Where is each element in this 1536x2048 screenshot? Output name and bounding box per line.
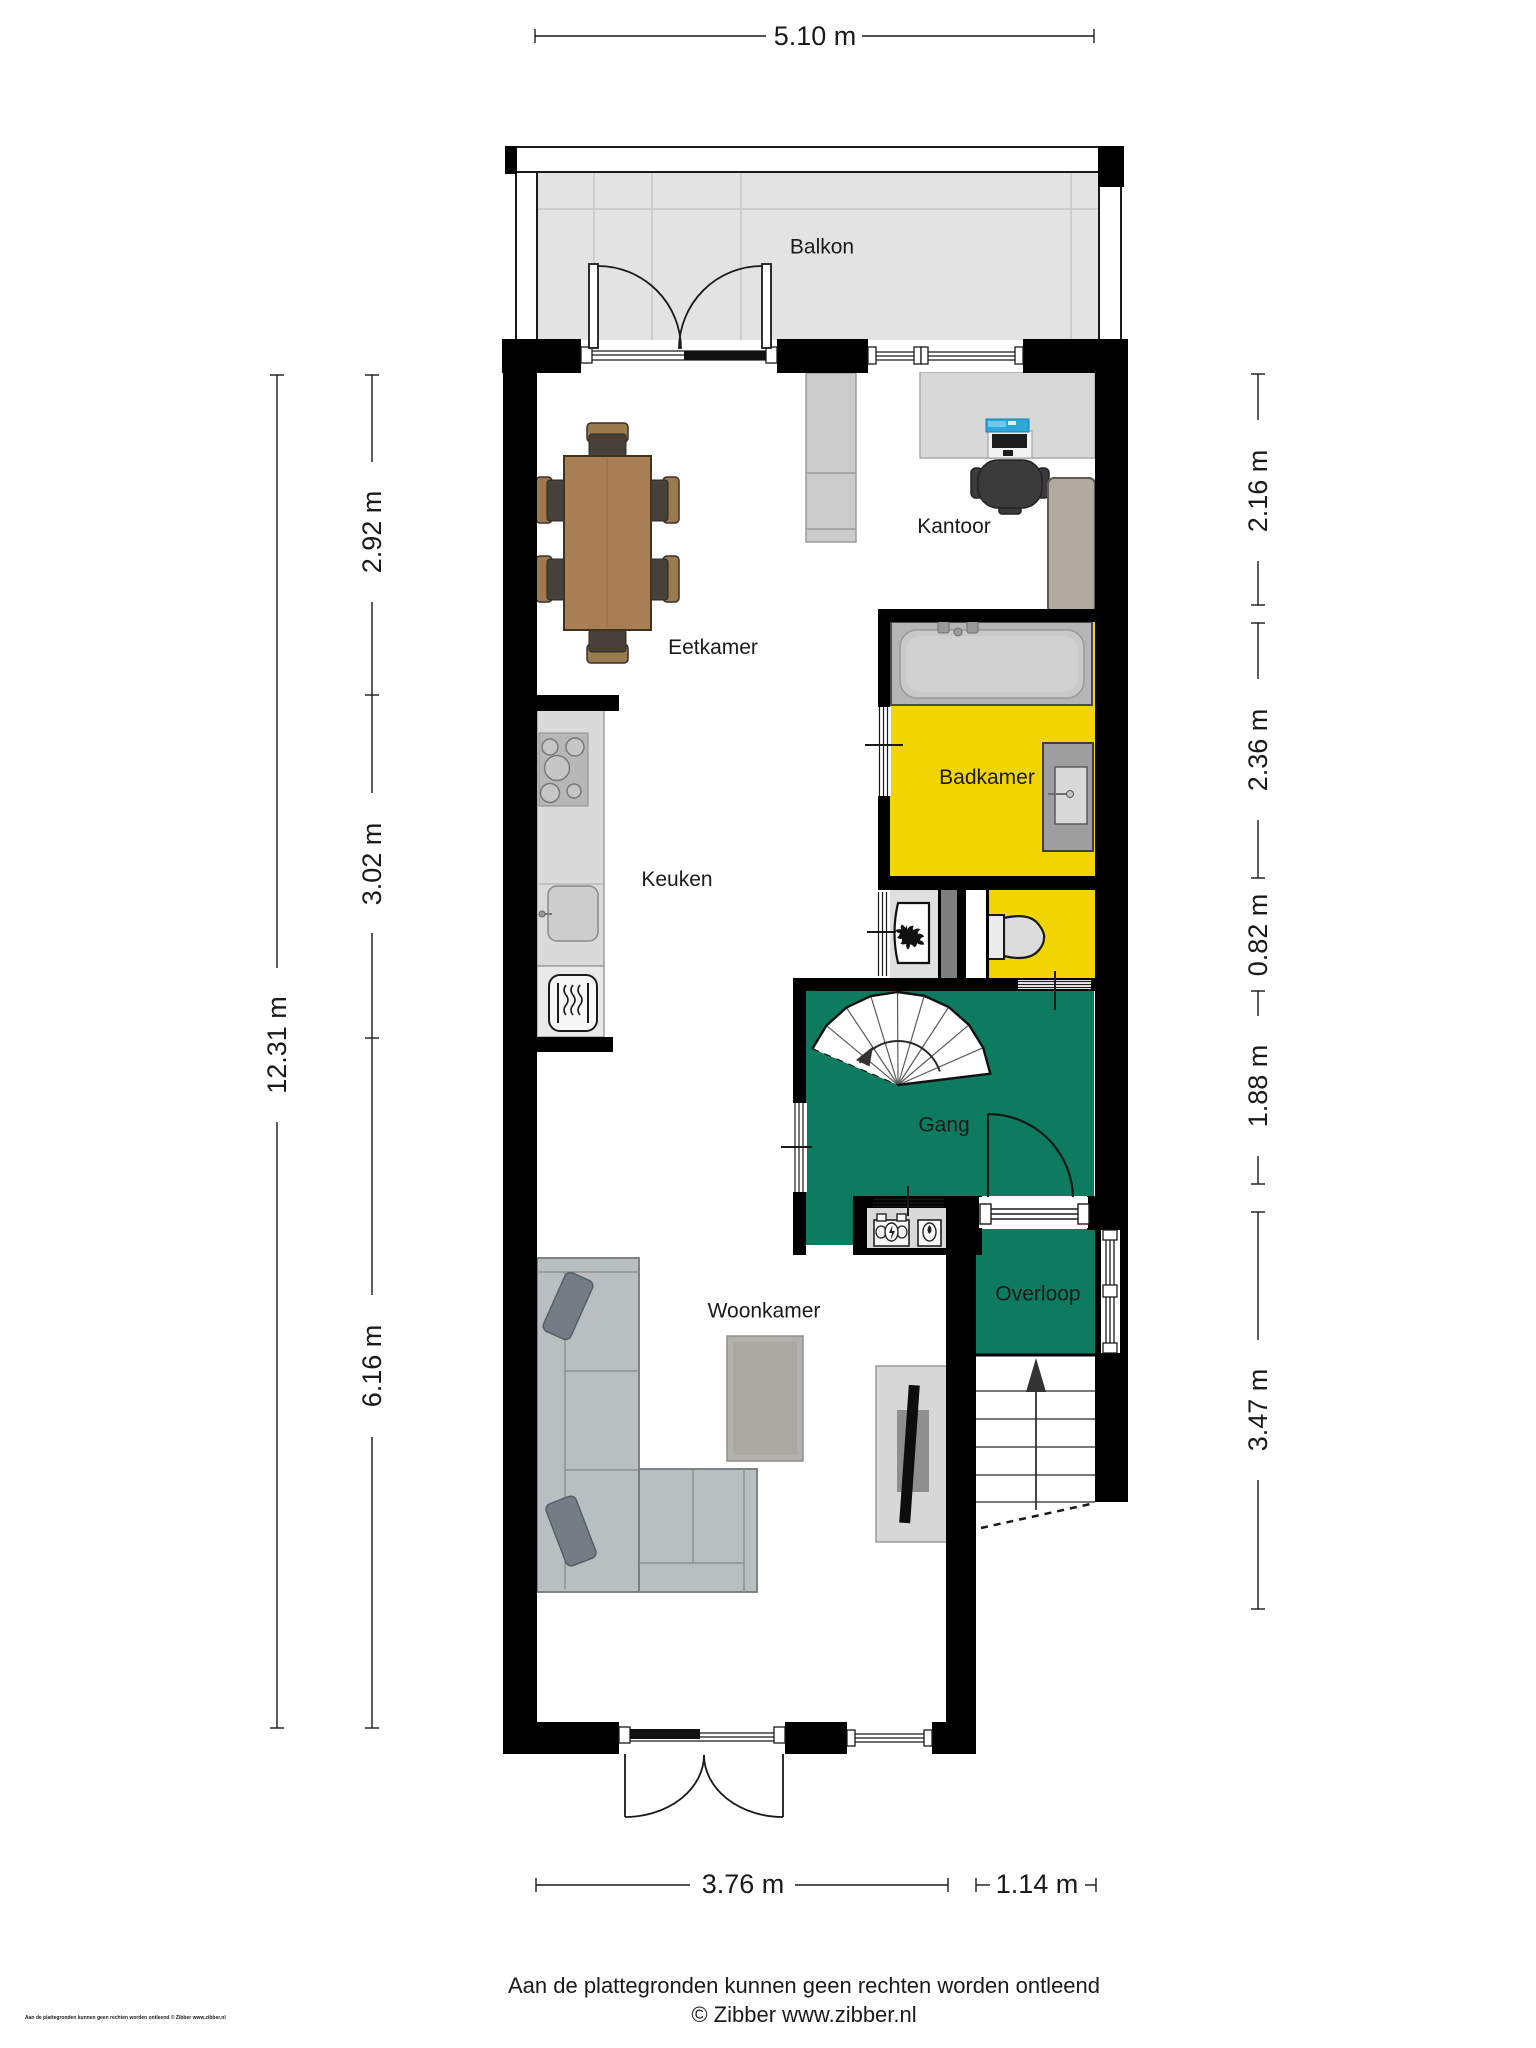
svg-text:Kantoor: Kantoor xyxy=(917,515,991,538)
svg-text:6.16 m: 6.16 m xyxy=(357,1325,387,1408)
svg-text:Balkon: Balkon xyxy=(790,236,854,259)
svg-text:Gang: Gang xyxy=(918,1114,969,1137)
svg-text:3.76 m: 3.76 m xyxy=(702,1869,785,1899)
svg-text:2.92 m: 2.92 m xyxy=(357,491,387,574)
svg-text:Woonkamer: Woonkamer xyxy=(708,1300,821,1323)
svg-text:3.47 m: 3.47 m xyxy=(1243,1369,1273,1452)
svg-text:1.88 m: 1.88 m xyxy=(1243,1045,1273,1128)
svg-text:12.31 m: 12.31 m xyxy=(262,996,292,1094)
svg-text:Aan de plattegronden kunnen ge: Aan de plattegronden kunnen geen rechten… xyxy=(25,2014,226,2021)
svg-text:5.10 m: 5.10 m xyxy=(774,21,857,51)
svg-text:Eetkamer: Eetkamer xyxy=(668,636,758,659)
svg-text:Badkamer: Badkamer xyxy=(939,766,1035,789)
svg-text:0.82 m: 0.82 m xyxy=(1243,894,1273,977)
svg-text:2.36 m: 2.36 m xyxy=(1243,709,1273,792)
svg-text:3.02 m: 3.02 m xyxy=(357,823,387,906)
svg-text:2.16 m: 2.16 m xyxy=(1243,450,1273,533)
svg-text:1.14 m: 1.14 m xyxy=(996,1869,1079,1899)
svg-text:Keuken: Keuken xyxy=(641,868,712,891)
svg-text:Overloop: Overloop xyxy=(995,1283,1080,1306)
svg-text:Aan de plattegronden kunnen ge: Aan de plattegronden kunnen geen rechten… xyxy=(508,1973,1100,1998)
svg-text:© Zibber www.zibber.nl: © Zibber www.zibber.nl xyxy=(691,2002,916,2027)
